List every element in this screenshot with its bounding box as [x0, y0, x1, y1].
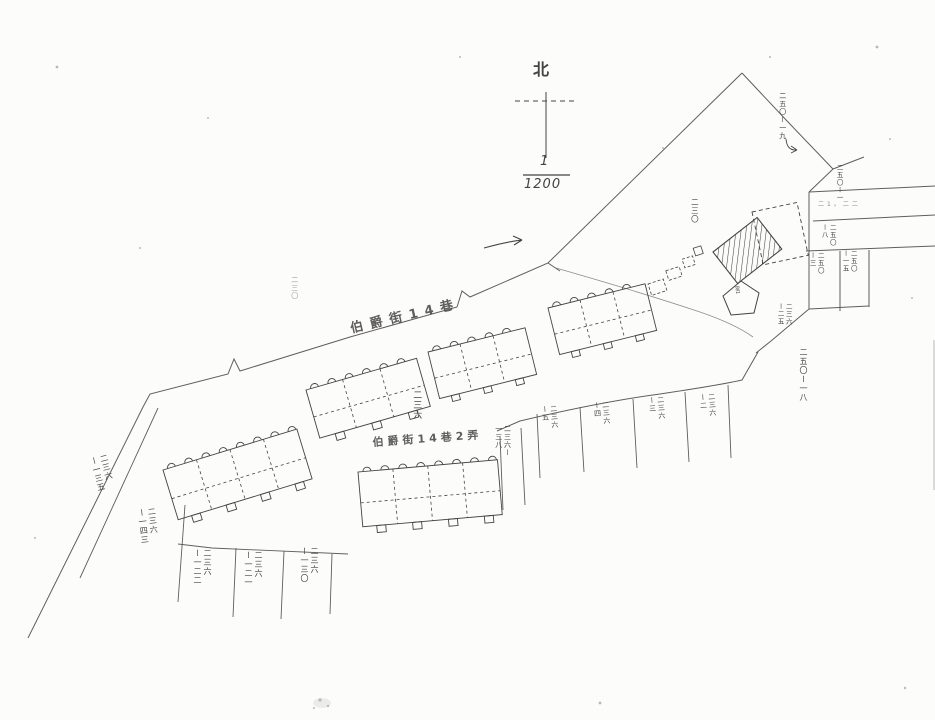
street-name-lane14: 伯爵街14巷: [348, 293, 461, 337]
labels-layer: 北 1 1200 伯爵街14巷 伯爵街14巷2弄 電1 二三〇二三〇二五〇ー一九…: [0, 0, 935, 720]
parcel-label: 二1。二二: [818, 199, 861, 208]
scale-numerator: 1: [540, 154, 548, 169]
parcel-label: 二三六 ー五: [540, 405, 559, 430]
parcel-label: 二三六ー 一三八: [494, 425, 512, 457]
parcel-label: 二三〇: [690, 198, 699, 224]
parcel-label: 二三六 ー一三五: [88, 453, 116, 493]
parcel-label: 二五〇ー一: [835, 164, 843, 202]
parcel-label: 二三六: [410, 390, 421, 420]
parcel-label: 二五〇ー一八: [798, 348, 808, 402]
parcel-label: 二三〇: [290, 276, 299, 300]
parcel-label: 二三六 ー一四三: [136, 507, 160, 545]
parcel-label: 二三六 ー二五: [776, 303, 792, 326]
parcel-label: 二三六 ー二: [698, 393, 717, 418]
pentagon-marker-label: 電1: [734, 286, 739, 294]
parcel-label: 二五〇 ー八: [820, 224, 836, 247]
parcel-label: 二五〇ー一九: [778, 92, 787, 140]
parcel-label: 二五〇 ー三: [808, 252, 824, 275]
parcel-label: 二三六 ー四: [592, 401, 611, 426]
street-name-alley2: 伯爵街14巷2弄: [372, 426, 483, 450]
scale-denominator: 1200: [524, 177, 561, 192]
scanned-site-plan-page: 北 1 1200 伯爵街14巷 伯爵街14巷2弄 電1 二三〇二三〇二五〇ー一九…: [0, 0, 935, 720]
parcel-label: 二三六 ー一二一: [243, 551, 263, 587]
north-indicator-label: 北: [533, 56, 549, 80]
parcel-label: 二三六 ー三: [647, 396, 666, 421]
parcel-label: 二三六 ー一三〇: [299, 547, 319, 583]
parcel-label: 二五〇 ー一五: [841, 250, 857, 273]
parcel-label: 二三六 ー一二二: [192, 549, 212, 585]
